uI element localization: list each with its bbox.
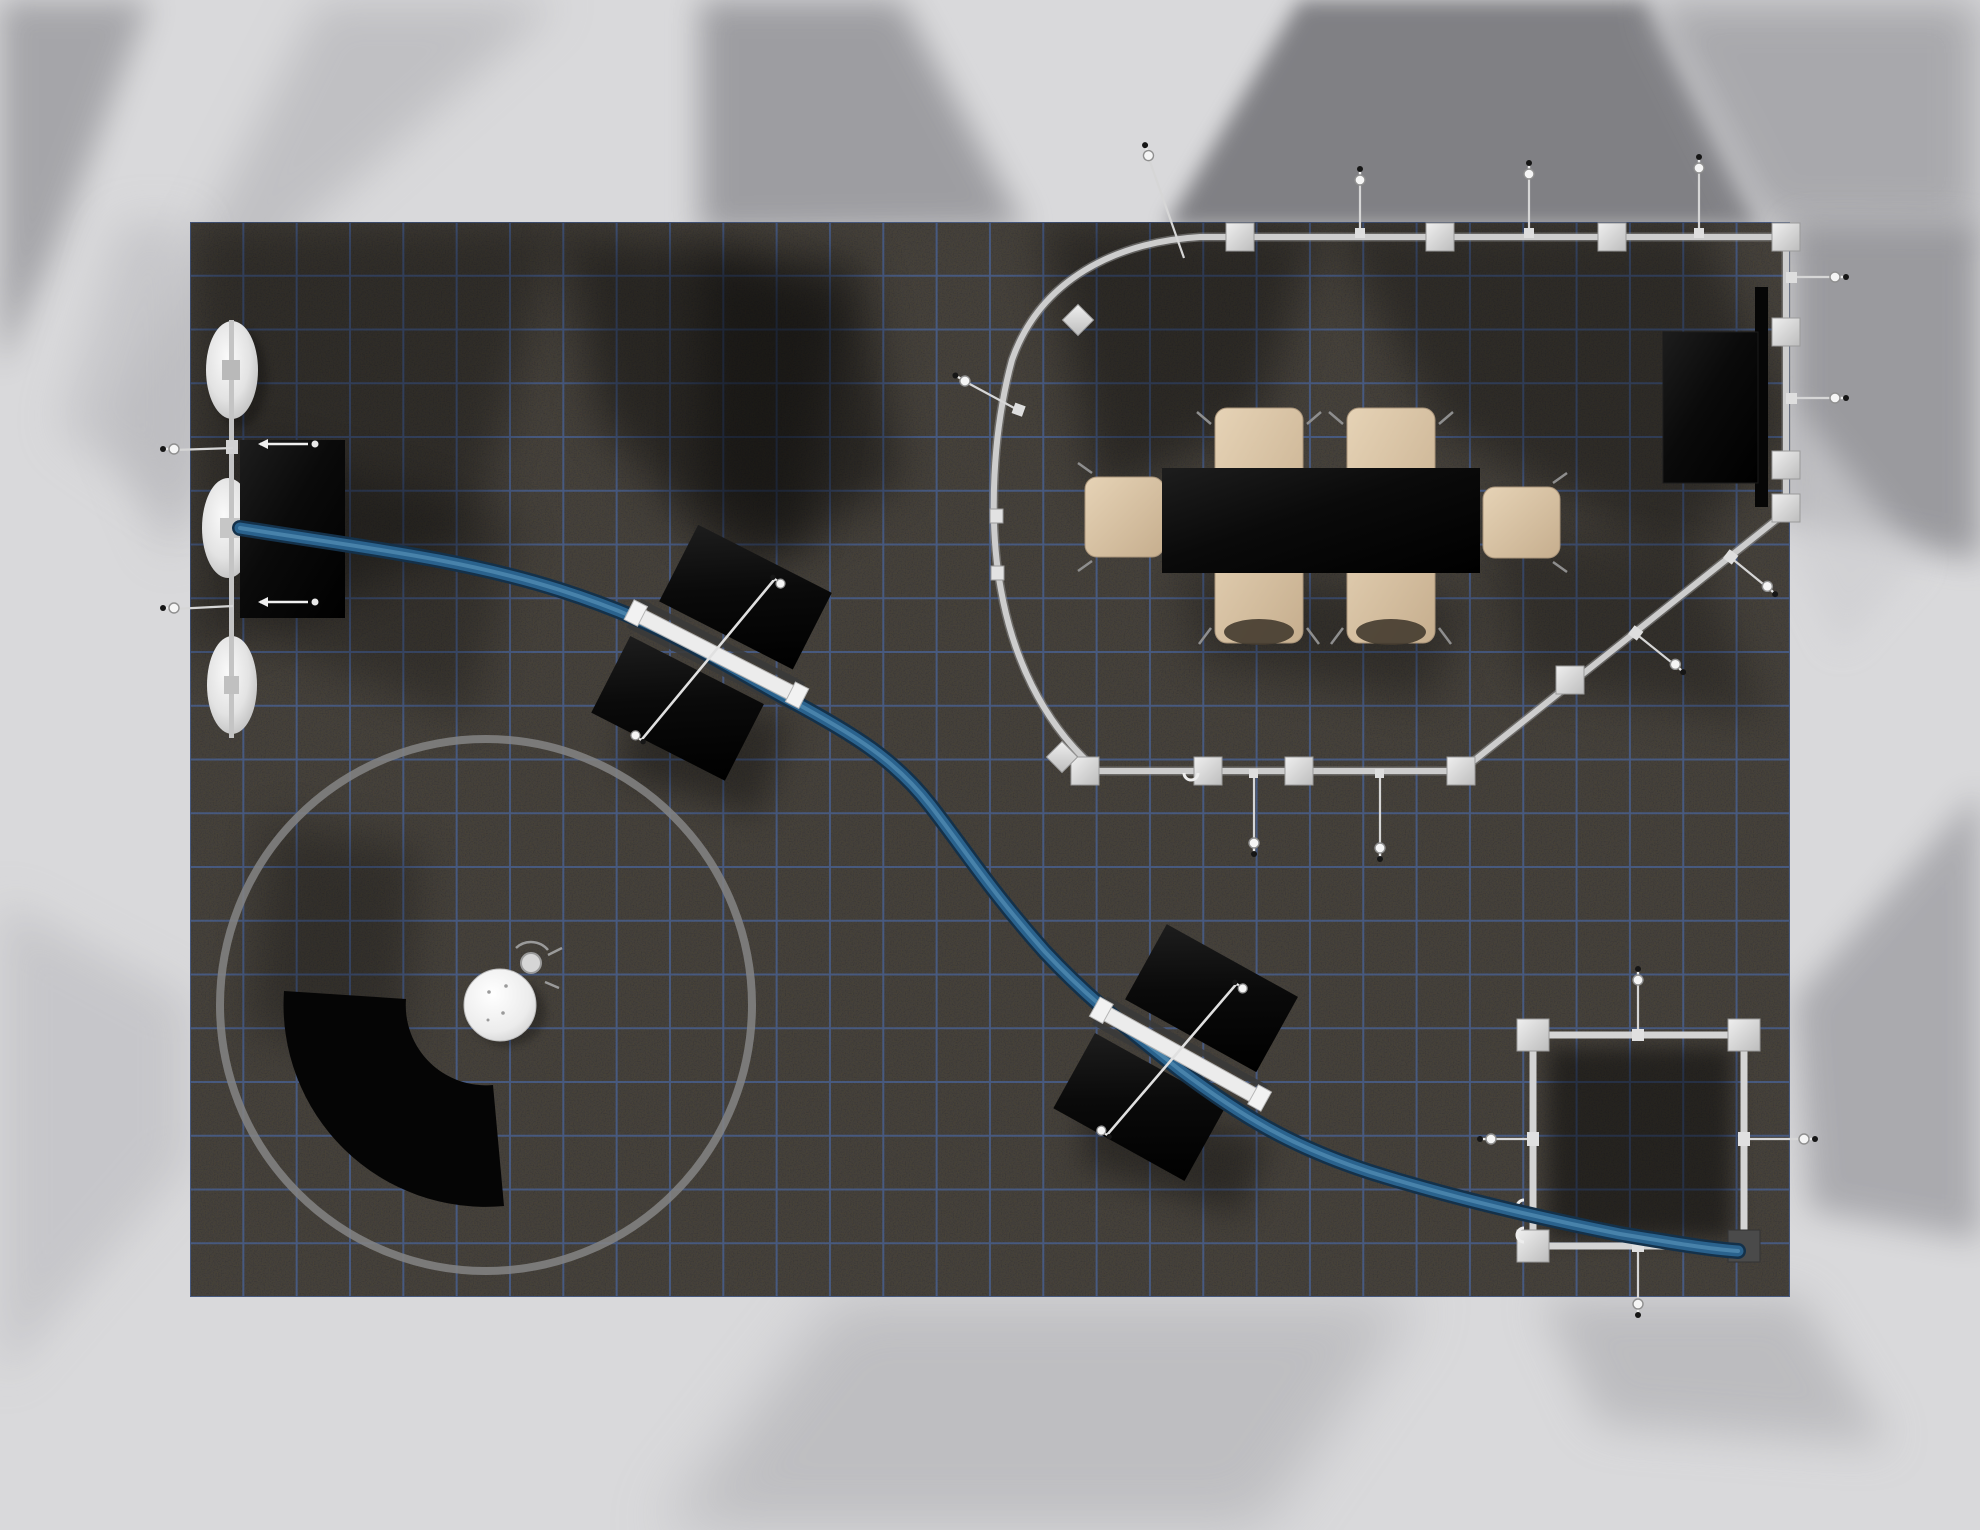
corner-connector xyxy=(1517,1230,1549,1262)
booth-render xyxy=(0,0,1980,1530)
render-viewport xyxy=(0,0,1980,1530)
corner-connector xyxy=(1517,1019,1549,1051)
conference-table xyxy=(1162,468,1480,573)
stool xyxy=(521,953,541,973)
corner-connector xyxy=(1728,1019,1760,1051)
chair xyxy=(1078,463,1164,571)
